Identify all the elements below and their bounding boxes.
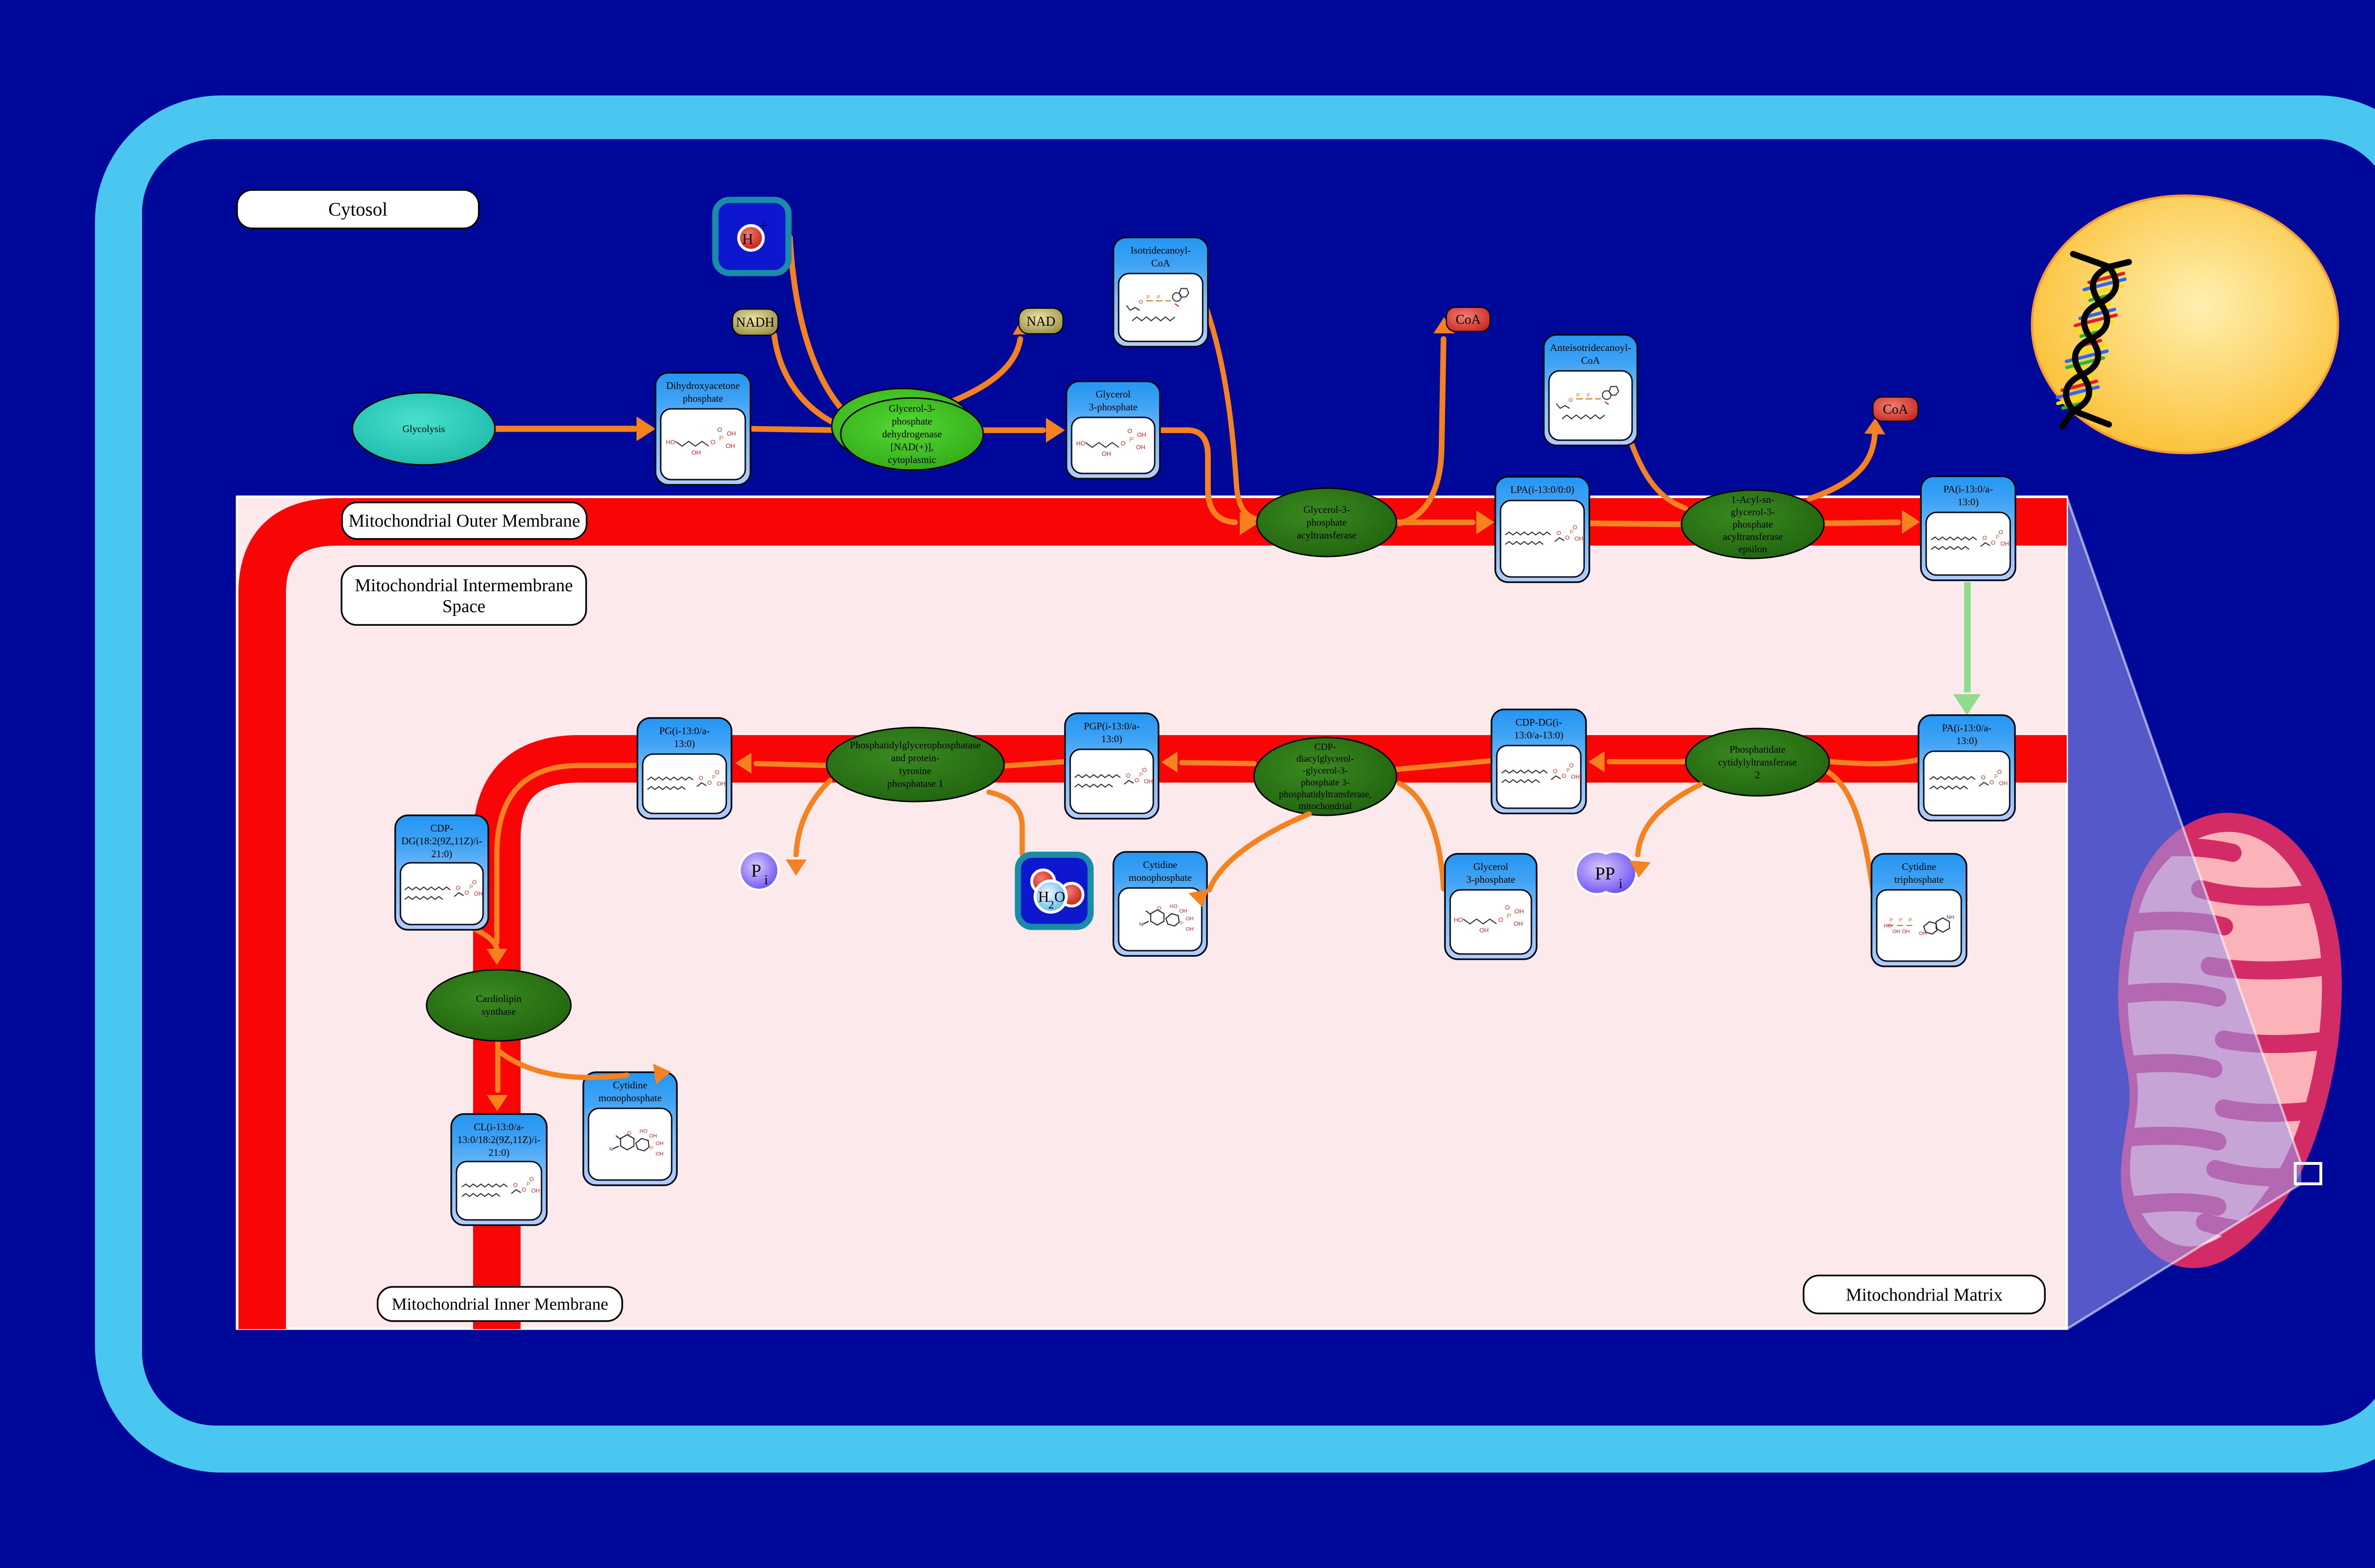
svg-text:OH: OH — [649, 1133, 657, 1139]
svg-text:O: O — [456, 885, 460, 891]
svg-text:P: P — [1890, 917, 1893, 923]
svg-text:O: O — [522, 1187, 526, 1193]
svg-text:Mitochondrial Outer Membrane: Mitochondrial Outer Membrane — [349, 511, 580, 531]
svg-text:i: i — [1619, 877, 1623, 891]
svg-text:O: O — [1126, 773, 1130, 779]
svg-text:O: O — [1999, 529, 2003, 536]
svg-text:O: O — [1569, 397, 1573, 403]
svg-text:O: O — [1499, 916, 1503, 924]
svg-text:OH: OH — [1102, 450, 1111, 457]
svg-text:H: H — [742, 230, 753, 247]
svg-text:OH: OH — [1514, 920, 1523, 927]
svg-text:OH: OH — [1902, 929, 1910, 935]
svg-text:OH: OH — [1144, 778, 1153, 785]
svg-text:O: O — [707, 780, 712, 786]
svg-text:HO: HO — [666, 439, 675, 446]
svg-text:OH: OH — [656, 1152, 664, 1157]
svg-text:O: O — [1054, 888, 1065, 905]
svg-text:OH: OH — [532, 1188, 540, 1194]
svg-text:O: O — [530, 1176, 534, 1183]
svg-text:O: O — [1990, 779, 1994, 786]
svg-text:P: P — [1587, 393, 1590, 398]
svg-text:P: P — [1180, 921, 1184, 926]
svg-text:P: P — [751, 861, 761, 881]
svg-text:CoA: CoA — [1456, 312, 1482, 327]
svg-text:O: O — [1981, 775, 1985, 781]
svg-text:O: O — [699, 775, 703, 782]
svg-text:O: O — [1128, 427, 1132, 435]
svg-text:O: O — [711, 439, 715, 446]
svg-text:O: O — [1135, 777, 1139, 784]
svg-text:O: O — [717, 426, 722, 434]
svg-text:P: P — [1157, 295, 1160, 301]
svg-text:P: P — [719, 435, 723, 442]
svg-text:O: O — [1569, 762, 1574, 769]
svg-text:OH: OH — [1136, 444, 1146, 451]
svg-text:HO: HO — [1076, 440, 1086, 447]
svg-text:HO: HO — [1884, 923, 1892, 929]
svg-text:O: O — [1121, 440, 1126, 447]
svg-text:HO: HO — [1170, 904, 1178, 909]
svg-text:OH: OH — [717, 781, 725, 787]
svg-text:PP: PP — [1595, 864, 1615, 884]
svg-text:O: O — [1142, 767, 1147, 774]
svg-text:O: O — [1565, 535, 1569, 541]
svg-text:HO: HO — [1454, 916, 1463, 924]
svg-text:OH: OH — [2001, 540, 2009, 547]
svg-text:2: 2 — [1048, 899, 1054, 911]
svg-text:O: O — [513, 1182, 518, 1189]
svg-text:P: P — [1577, 393, 1580, 398]
svg-text:OH: OH — [1919, 931, 1927, 936]
svg-text:P: P — [650, 1146, 654, 1152]
svg-text:OH: OH — [692, 449, 701, 456]
svg-text:O: O — [1983, 535, 1987, 541]
svg-text:O: O — [1158, 906, 1162, 911]
svg-text:OH: OH — [1892, 929, 1900, 935]
svg-text:O: O — [627, 1131, 632, 1136]
svg-text:OH: OH — [1999, 780, 2008, 787]
svg-text:O: O — [1562, 773, 1566, 779]
svg-text:OH: OH — [1186, 926, 1194, 932]
svg-text:i: i — [764, 873, 768, 888]
svg-text:OH: OH — [727, 430, 736, 437]
svg-text:Mitochondrial Inner Membrane: Mitochondrial Inner Membrane — [392, 1294, 608, 1313]
svg-text:CoA: CoA — [1883, 402, 1909, 417]
svg-text:NH: NH — [1947, 915, 1954, 920]
svg-text:OH: OH — [1480, 927, 1489, 934]
svg-text:O: O — [1553, 768, 1558, 775]
svg-text:HO: HO — [640, 1129, 648, 1134]
svg-text:O: O — [715, 769, 719, 776]
svg-text:O: O — [1573, 524, 1577, 531]
svg-text:OH: OH — [726, 443, 735, 450]
svg-text:N: N — [1140, 922, 1143, 927]
svg-text:LPA(i-13:0/0:0): LPA(i-13:0/0:0) — [1510, 484, 1575, 495]
svg-text:OH: OH — [656, 1141, 664, 1147]
svg-text:P: P — [1130, 435, 1134, 443]
svg-text:O: O — [1557, 530, 1561, 537]
svg-text:O: O — [472, 879, 476, 886]
svg-text:Cytosol: Cytosol — [328, 198, 387, 220]
svg-text:Glycerol-3-phosphatedehydrogen: Glycerol-3-phosphatedehydrogenase[NAD(+)… — [882, 403, 942, 465]
svg-text:OH: OH — [1137, 431, 1147, 438]
svg-text:O: O — [1505, 904, 1510, 911]
svg-text:O: O — [1139, 300, 1143, 305]
svg-text:OH: OH — [1179, 908, 1187, 914]
svg-text:NADH: NADH — [736, 315, 775, 330]
svg-text:H: H — [1038, 888, 1049, 905]
svg-text:O: O — [465, 889, 469, 896]
svg-text:O: O — [1991, 539, 1995, 546]
svg-text:OH: OH — [474, 890, 483, 897]
svg-text:Mitochondrial Matrix: Mitochondrial Matrix — [1846, 1285, 2003, 1305]
svg-text:OH: OH — [1571, 774, 1580, 780]
svg-text:OH: OH — [1575, 536, 1583, 542]
svg-text:P: P — [1909, 917, 1912, 923]
svg-text:N: N — [609, 1147, 613, 1152]
svg-text:OH: OH — [1186, 916, 1194, 922]
svg-text:P: P — [1899, 917, 1902, 923]
svg-text:OH: OH — [1515, 908, 1524, 915]
svg-text:P: P — [1147, 295, 1150, 301]
svg-text:P: P — [1507, 912, 1511, 920]
svg-text:O: O — [1997, 769, 2002, 775]
svg-text:+: + — [759, 217, 768, 234]
svg-text:Glycolysis: Glycolysis — [402, 423, 445, 435]
svg-text:NAD: NAD — [1026, 314, 1055, 329]
